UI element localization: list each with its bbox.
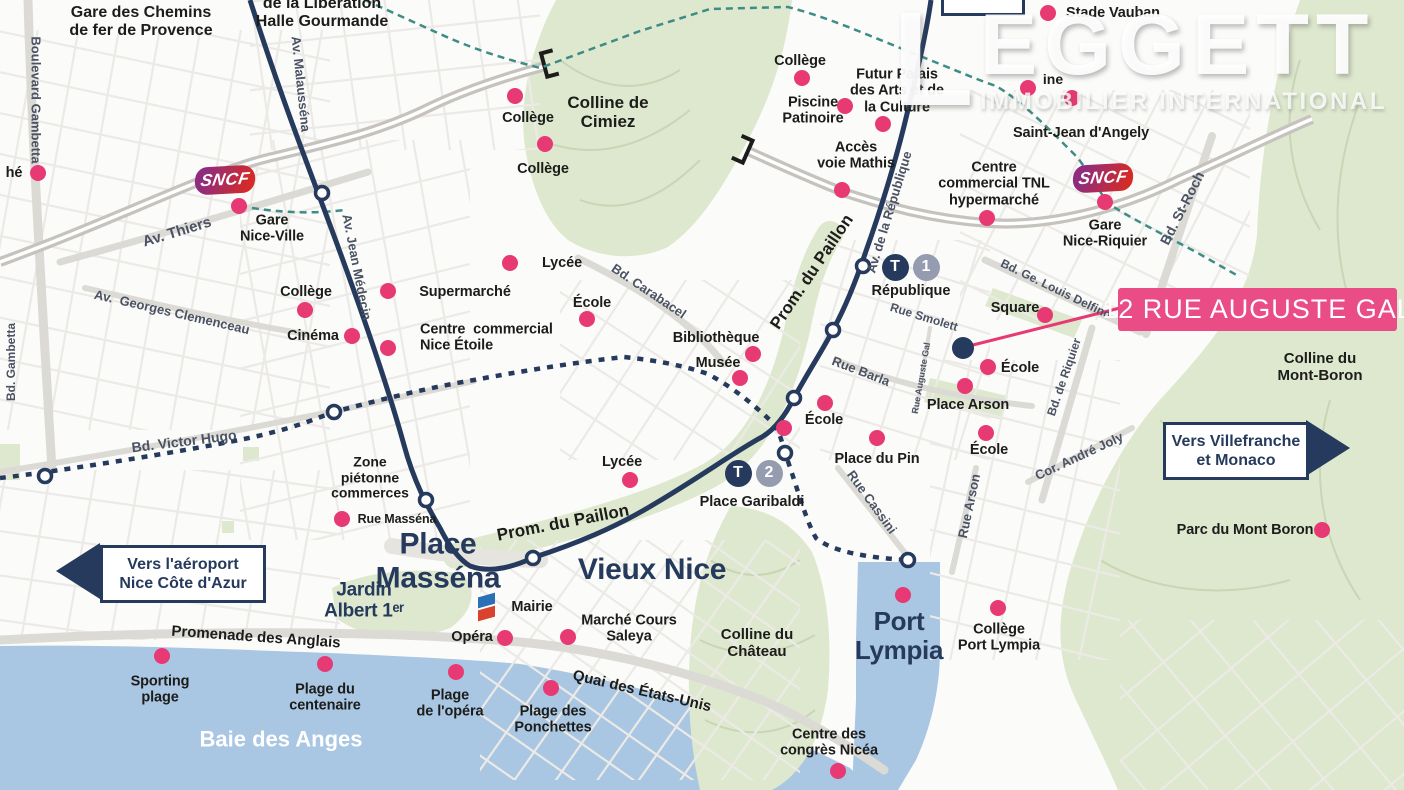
sncf-logo: SNCF: [192, 164, 257, 195]
poi-label-centre-des: Centre des congrès Nicéa: [780, 727, 878, 760]
area-label-ine: ine: [1043, 72, 1063, 88]
poi-label-bibliotheque: Bibliothèque: [673, 330, 760, 346]
street-label-cor-andre-joly: Cor. André Joly: [1033, 429, 1126, 483]
poi-dot-opera: [497, 630, 513, 646]
poi-dot-place-du-pin: [869, 430, 885, 446]
poi-dot-lycee: [502, 255, 518, 271]
area-label-colline-de: Colline de Cimiez: [567, 93, 648, 131]
street-label-prom-du-paillon: Prom. du Paillon: [495, 500, 630, 545]
poi-dot-college: [537, 136, 553, 152]
poi-dot-dot: [895, 587, 911, 603]
flag-red: [478, 606, 495, 622]
poi-dot-ecole: [980, 359, 996, 375]
poi-dot-stade-vauban: [1040, 5, 1056, 21]
poi-dot-ecole: [579, 311, 595, 327]
poi-label-college: Collège: [502, 110, 554, 126]
area-label-colline-du: Colline du Mont-Boron: [1278, 351, 1363, 385]
street-label-bd-st-roch: Bd. St-Roch: [1157, 169, 1208, 248]
poi-label-ecole: École: [1001, 360, 1039, 376]
station-dot-nice-ville: [231, 198, 247, 214]
poi-label-marche-cours: Marché Cours Saleya: [581, 613, 677, 646]
poi-dot-plage: [448, 664, 464, 680]
poi-label-stade-vauban: Stade Vauban: [1066, 5, 1160, 21]
poi-label-place-arson: Place Arson: [927, 397, 1009, 413]
poi-label-he: hé: [6, 165, 23, 181]
poi-label-sporting: Sporting plage: [131, 674, 190, 707]
poi-dot-centre: [979, 210, 995, 226]
street-label-prom-du-paillon: Prom. du Paillon: [766, 211, 858, 333]
poi-label-centre-commercial: Centre commercial Nice Étoile: [420, 322, 553, 355]
poi-dot-cinema: [344, 328, 360, 344]
partial-sign-box: [941, 0, 1025, 16]
street-label-promenade-des-anglais: Promenade des Anglais: [171, 623, 341, 652]
sncf-logo: SNCF: [1070, 162, 1135, 193]
nice-map: héCollègeCollègeLycéeÉcoleSupermarchéCol…: [0, 0, 1404, 790]
tram-t-badge-line-1: T: [882, 254, 909, 281]
poi-label-plage: Plage de l'opéra: [417, 688, 484, 721]
poi-dot-dot: [1020, 80, 1036, 96]
poi-label-futur-palais: Futur Palais des Arts et de la Culture: [850, 66, 944, 115]
poi-label-supermarche: Supermarché: [419, 284, 511, 300]
station-dot-nice-riquier: [1097, 194, 1113, 210]
street-label-rue-cassini: Rue Cassini: [844, 467, 900, 536]
street-label-bd-gambetta: Bd. Gambetta: [4, 323, 18, 401]
poi-dot-bibliotheque: [745, 346, 761, 362]
tram-t-badge-line-2: T: [725, 460, 752, 487]
poi-label-lycee: Lycée: [542, 255, 582, 271]
tram-stop-label-republique: République: [872, 283, 951, 299]
tram-stop-label-place-garibaldi: Place Garibaldi: [700, 494, 805, 510]
poi-dot-saint-jean-d-angely: [1064, 90, 1080, 106]
poi-dot-acces: [834, 182, 850, 198]
area-label-jardin: Jardin Albert 1ᵉʳ: [324, 580, 404, 623]
poi-dot-lycee: [622, 472, 638, 488]
poi-label-parc-du-mont-boron: Parc du Mont Boron: [1177, 522, 1314, 538]
area-label-baie-des-anges: Baie des Anges: [199, 728, 362, 753]
poi-label-cinema: Cinéma: [287, 328, 339, 344]
poi-dot-futur-palais: [875, 116, 891, 132]
tram-number-badge-1: 1: [913, 254, 940, 281]
street-label-bd-victor-hugo: Bd. Victor Hugo: [131, 427, 238, 456]
poi-dot-he: [30, 165, 46, 181]
street-label-boulevard-gambetta: Boulevard Gambetta: [29, 36, 44, 163]
poi-dot-musee: [732, 370, 748, 386]
poi-label-rue-massena: Rue Masséna: [358, 512, 437, 526]
poi-label-opera: Opéra: [451, 629, 492, 645]
poi-dot-plage-du: [317, 656, 333, 672]
street-label-av-georges-clemenceau: Av. Georges Clemenceau: [93, 287, 251, 337]
street-label-bd-carabacel: Bd. Carabacel: [609, 261, 689, 322]
poi-label-centre: Centre commercial TNL hypermarché: [938, 159, 1049, 208]
poi-label-acces: Accès voie Mathis: [817, 140, 895, 173]
poi-dot-ecole: [817, 395, 833, 411]
poi-dot-college: [794, 70, 810, 86]
poi-dot-plage-des: [543, 680, 559, 696]
street-label-av-jean-medecin: Av. Jean Médecin: [339, 213, 374, 322]
poi-dot-parc-du-mont-boron: [1314, 522, 1330, 538]
nice-flag-icon: [478, 594, 495, 620]
poi-label-square: Square: [991, 300, 1040, 316]
poi-label-college: Collège: [517, 161, 569, 177]
street-label-quai-des-etats-unis: Quai des États-Unis: [571, 667, 713, 715]
poi-label-piscine: Piscine Patinoire: [782, 95, 843, 128]
poi-dot-marche-cours: [560, 629, 576, 645]
direction-sign-vers-villefranche: Vers Villefranche et Monaco: [1163, 422, 1309, 480]
station-label-nice-riquier: Gare Nice-Riquier: [1063, 218, 1147, 251]
property-location-dot: [952, 337, 974, 359]
street-label-rue-smolett: Rue Smolett: [888, 300, 959, 334]
property-address-callout: 12 RUE AUGUSTE GAL: [1118, 288, 1397, 331]
area-label-colline-du: Colline du Château: [721, 627, 794, 661]
area-label-port: Port Lympia: [855, 607, 943, 665]
poi-label-college: Collège: [280, 284, 332, 300]
poi-dot-centre-commercial: [380, 340, 396, 356]
poi-label-ecole: École: [805, 412, 843, 428]
street-label-av-thiers: Av. Thiers: [141, 214, 214, 251]
poi-label-plage-du: Plage du centenaire: [289, 682, 361, 715]
direction-sign-vers-l-aeroport: Vers l'aéroport Nice Côte d'Azur: [100, 545, 266, 603]
poi-label-mairie: Mairie: [511, 599, 552, 615]
street-label-rue-barla: Rue Barla: [830, 353, 892, 389]
poi-dot-ecole: [978, 425, 994, 441]
poi-label-lycee: Lycée: [602, 454, 642, 470]
direction-arrow-right-icon: [1306, 420, 1350, 476]
area-label-de-la-liberation: de la Libération Halle Gourmande: [256, 0, 388, 31]
street-label-rue-arson: Rue Arson: [955, 473, 983, 540]
poi-label-plage-des: Plage des Ponchettes: [514, 704, 591, 737]
area-label-gare-des-chemins: Gare des Chemins de fer de Provence: [69, 4, 212, 40]
labels-layer: héCollègeCollègeLycéeÉcoleSupermarchéCol…: [0, 0, 1404, 790]
area-label-vieux-nice: Vieux Nice: [578, 553, 726, 587]
poi-dot-college: [507, 88, 523, 104]
poi-label-musee: Musée: [696, 355, 741, 371]
poi-dot-place-arson: [957, 378, 973, 394]
poi-label-ecole: École: [970, 442, 1008, 458]
poi-dot-supermarche: [380, 283, 396, 299]
poi-dot-rue-massena: [334, 511, 350, 527]
direction-arrow-left-icon: [56, 543, 100, 599]
poi-dot-centre-des: [830, 763, 846, 779]
poi-label-place-du-pin: Place du Pin: [834, 451, 919, 467]
poi-dot-college: [297, 302, 313, 318]
poi-dot-dot: [776, 420, 792, 436]
poi-label-college: Collège: [774, 53, 826, 69]
poi-dot-sporting: [154, 648, 170, 664]
poi-label-college: Collège Port Lympia: [958, 622, 1040, 655]
street-label-av-malaussena: Av. Malausséna: [289, 35, 314, 132]
street-label-bd-de-riquier: Bd. de Riquier: [1044, 336, 1084, 417]
station-label-nice-ville: Gare Nice-Ville: [240, 213, 304, 246]
area-label-zone: Zone piétonne commerces: [331, 454, 409, 501]
poi-dot-college: [990, 600, 1006, 616]
poi-label-ecole: École: [573, 295, 611, 311]
tram-number-badge-2: 2: [756, 460, 783, 487]
poi-label-saint-jean-d-angely: Saint-Jean d'Angely: [1013, 125, 1149, 141]
